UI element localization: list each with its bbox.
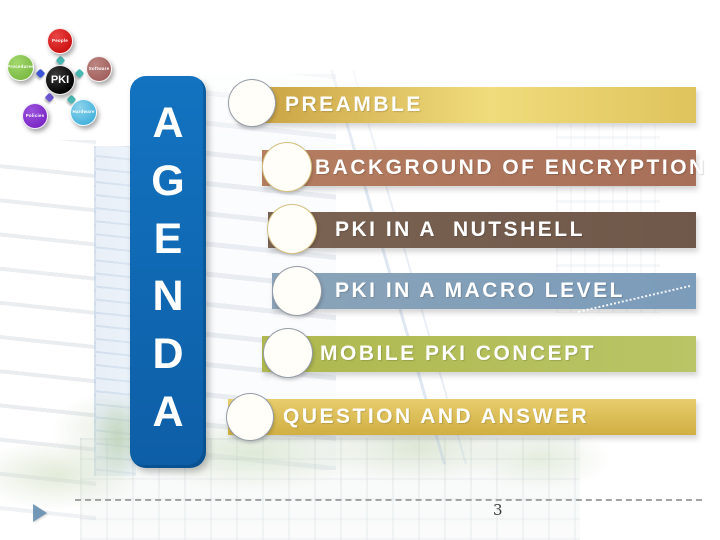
- agenda-item-label: PKI IN A NUTSHELL: [335, 218, 585, 241]
- pki-circle-label: Hardware: [72, 110, 94, 115]
- pki-circle-hardware: Hardware: [70, 99, 97, 126]
- agenda-bullet-circle: [228, 79, 276, 127]
- slide: People Procedures Software Policies Hard…: [0, 0, 720, 540]
- agenda-letter: G: [151, 160, 184, 203]
- pki-circle-procedures: Procedures: [7, 54, 34, 81]
- agenda-item-label: MOBILE PKI CONCEPT: [320, 342, 596, 365]
- pki-circle-software: Software: [86, 56, 112, 82]
- agenda-title-panel: A G E N D A: [130, 76, 206, 468]
- agenda-bar: PREAMBLE: [238, 87, 696, 123]
- agenda-bar: BACKGROUND OF ENCRYPTION: [262, 150, 696, 186]
- pki-center-circle: PKI: [45, 65, 75, 95]
- footer-divider: [75, 499, 702, 501]
- agenda-item-label: BACKGROUND OF ENCRYPTION: [315, 156, 707, 179]
- agenda-bullet-circle: [262, 142, 312, 192]
- agenda-bar: QUESTION AND ANSWER: [228, 399, 696, 435]
- agenda-letter: D: [152, 333, 183, 376]
- agenda-item-label: PREAMBLE: [285, 93, 423, 116]
- pki-circle-label: People: [52, 39, 68, 44]
- agenda-item-label: PKI IN A MACRO LEVEL: [335, 279, 625, 302]
- pki-center-label: PKI: [51, 74, 69, 86]
- next-arrow-icon[interactable]: [33, 504, 47, 522]
- agenda-letter: E: [154, 218, 183, 261]
- connector-icon: [36, 69, 46, 79]
- bg-left-building: [0, 140, 96, 540]
- agenda-letter: A: [152, 391, 183, 434]
- agenda-bullet-circle: [272, 266, 322, 316]
- pki-circle-policies: Policies: [22, 103, 48, 129]
- agenda-bullet-circle: [267, 204, 317, 254]
- agenda-letter: N: [152, 275, 183, 318]
- pki-circle-label: Policies: [26, 114, 45, 119]
- agenda-bar: PKI IN A MACRO LEVEL: [272, 273, 696, 309]
- pki-circle-label: Procedures: [7, 65, 34, 70]
- connector-icon: [75, 69, 85, 79]
- pki-circle-label: Software: [89, 67, 110, 72]
- connector-icon: [56, 56, 66, 66]
- agenda-bar: MOBILE PKI CONCEPT: [262, 336, 696, 372]
- agenda-bullet-circle: [263, 328, 313, 378]
- agenda-item-label: QUESTION AND ANSWER: [283, 405, 589, 428]
- pki-diagram: People Procedures Software Policies Hard…: [0, 8, 130, 138]
- connector-icon: [45, 93, 55, 103]
- agenda-bar: PKI IN A NUTSHELL: [268, 212, 696, 248]
- agenda-bullet-circle: [226, 393, 274, 441]
- pki-circle-people: People: [47, 28, 73, 54]
- agenda-letter: A: [152, 102, 183, 145]
- page-number: 3: [493, 501, 503, 519]
